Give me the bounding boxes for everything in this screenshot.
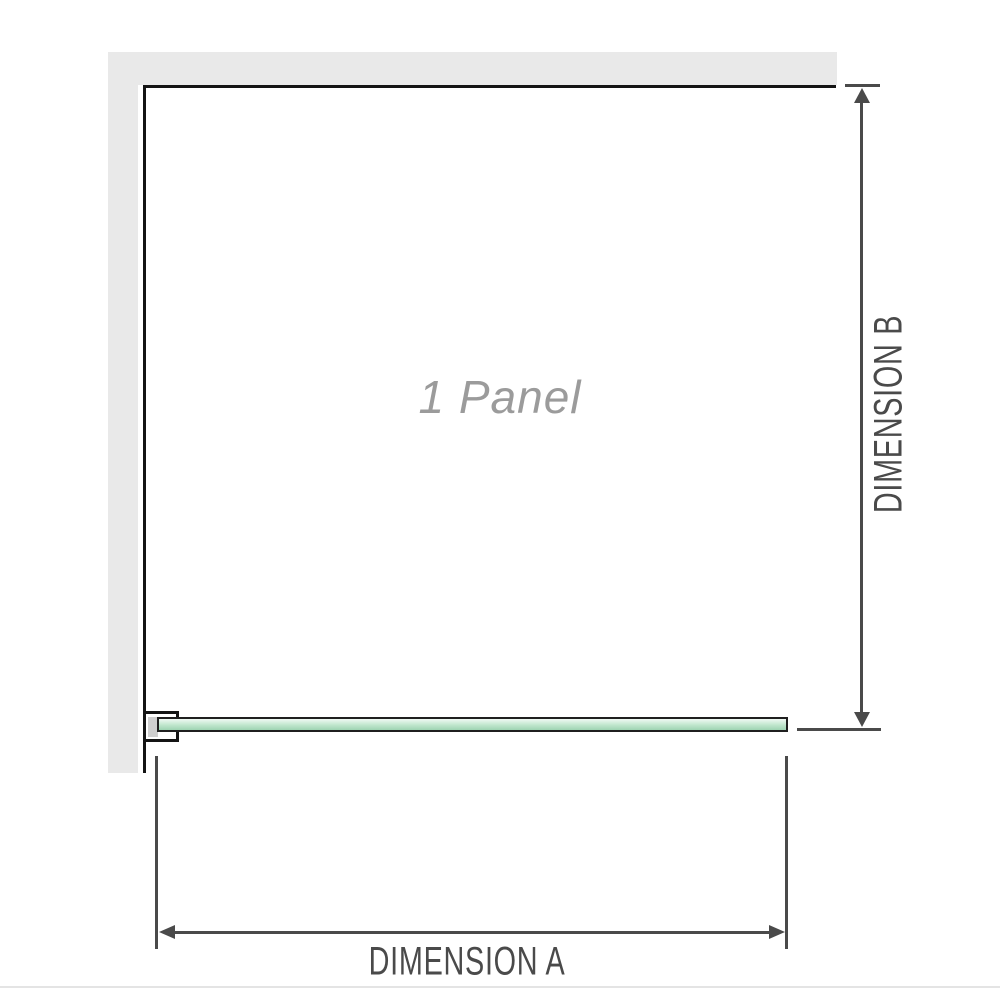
arrow-up-icon: [854, 88, 870, 103]
arrow-down-icon: [854, 712, 870, 727]
panel-outline-left: [143, 85, 146, 773]
dimension-a-label: DIMENSION A: [369, 940, 566, 985]
panel-dimension-diagram: 1 Panel DIMENSION B DIMENSION A: [0, 0, 1000, 1000]
dimension-b-tick-bottom: [797, 728, 881, 731]
glass-panel-bar: [157, 717, 788, 732]
dimension-a-line: [170, 931, 774, 934]
dimension-b-tick-top: [845, 84, 880, 87]
arrow-left-icon: [159, 925, 175, 939]
dimension-b-label: DIMENSION B: [867, 315, 912, 513]
wall-side-band: [108, 52, 138, 773]
panel-count-label: 1 Panel: [418, 370, 581, 424]
arrow-right-icon: [769, 925, 785, 939]
panel-outline-top: [143, 85, 836, 88]
dimension-a-extension-left: [155, 756, 158, 949]
page-separator-line: [0, 986, 1000, 988]
dimension-b-line: [860, 100, 863, 715]
dimension-a-extension-right: [785, 756, 788, 949]
wall-top-band: [108, 52, 837, 85]
